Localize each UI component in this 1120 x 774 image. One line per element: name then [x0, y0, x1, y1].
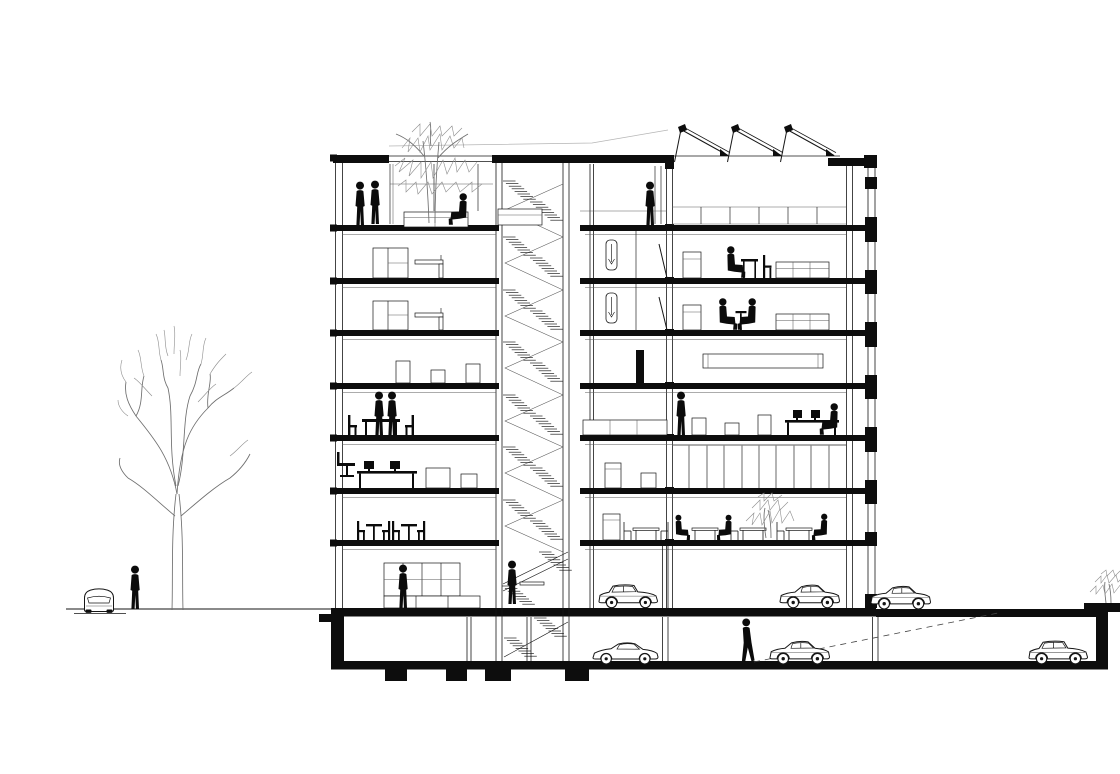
cafe-person-3: [812, 514, 827, 541]
desk-with-monitors: [357, 461, 417, 488]
stair-core: [498, 181, 572, 657]
cafe-table-4: [777, 522, 812, 540]
fridge: [683, 252, 701, 278]
floor4-crates: [396, 361, 480, 383]
stair-core-walls: [496, 163, 569, 608]
stair-person: [508, 561, 517, 604]
cafe-person-1: [675, 515, 690, 540]
parked-sedan-right: [871, 586, 931, 609]
apartment1-person-seated: [727, 246, 745, 278]
street-car-front: [85, 589, 114, 613]
cafe-table-1: [624, 522, 668, 540]
core-roof-slab: [492, 155, 668, 163]
cafe-plant: [746, 493, 794, 538]
parking-car-2: [780, 585, 840, 608]
office-person-standing: [677, 392, 686, 435]
sawtooth-roof: [670, 124, 876, 224]
clerestory-band: [672, 207, 846, 224]
floor2-workstation: [337, 452, 477, 488]
cafe-person-2: [717, 515, 732, 540]
apartment2-person-seated-left: [719, 298, 737, 330]
buried-garage-roof: [876, 609, 1108, 617]
ground-parking: [599, 546, 840, 608]
planter-shrub: [1084, 570, 1120, 612]
substructure: [319, 608, 1108, 681]
basement-slab: [331, 661, 1108, 670]
sofa-2: [776, 314, 829, 330]
hall-person: [646, 182, 655, 225]
terrace-person-2: [371, 181, 380, 224]
left-facade-anchors: [330, 155, 337, 547]
building-section-drawing: Building cross-section — architectural d…: [40, 16, 1120, 758]
basement-pedestrian: [742, 619, 755, 662]
terrace-tree: [395, 122, 482, 223]
right-roof-slab: [828, 158, 876, 166]
left-wing-floors: [337, 248, 480, 608]
floor6-furniture: [373, 248, 443, 278]
floor5-furniture: [373, 301, 443, 330]
office-chair: [337, 452, 355, 477]
dining-table: [741, 259, 758, 278]
dining-chair: [763, 255, 772, 278]
cafe-floor: [603, 493, 827, 541]
storage-floor: [636, 350, 823, 383]
ground-showroom: [384, 563, 480, 608]
basement-car-sport: [593, 643, 658, 664]
basement-car-sedan: [770, 641, 830, 664]
floor1-tables: [357, 521, 425, 540]
basement-car-hatchback: [1029, 641, 1088, 664]
curtainwall-floor: [605, 446, 846, 489]
terrace-canopy-slab: [333, 155, 389, 163]
door-leaf: [659, 244, 667, 278]
right-foundation-wall: [1096, 609, 1108, 669]
cafe-table-2: [692, 528, 718, 540]
floor3-meeting: [348, 392, 414, 435]
top-hall: [580, 166, 667, 225]
sofa: [776, 262, 829, 278]
terrace-person-1: [356, 182, 365, 225]
roof-terrace: [356, 122, 494, 227]
apartment-upper: [606, 231, 829, 278]
ground-slab: [331, 608, 876, 617]
meeting-person-1: [375, 392, 384, 435]
pad-footings: [385, 669, 589, 681]
meeting-person-2: [388, 392, 397, 435]
site-right: [871, 570, 1120, 612]
shower-symbol: [606, 240, 617, 270]
copier: [692, 418, 706, 435]
top-landing: [498, 209, 542, 225]
street-pedestrian: [131, 566, 140, 609]
drawing-canvas: Black-and-white sectional elevation of a…: [40, 16, 1120, 758]
parking-car-1: [599, 585, 658, 608]
apartment-lower: [606, 284, 829, 330]
site-left: [66, 326, 331, 614]
workbench-outline: [703, 354, 823, 368]
office-floor: [583, 392, 839, 435]
left-foundation-wall: [331, 608, 344, 669]
cafe-table-3: [731, 522, 766, 540]
stair-stringer-line: [505, 184, 563, 552]
